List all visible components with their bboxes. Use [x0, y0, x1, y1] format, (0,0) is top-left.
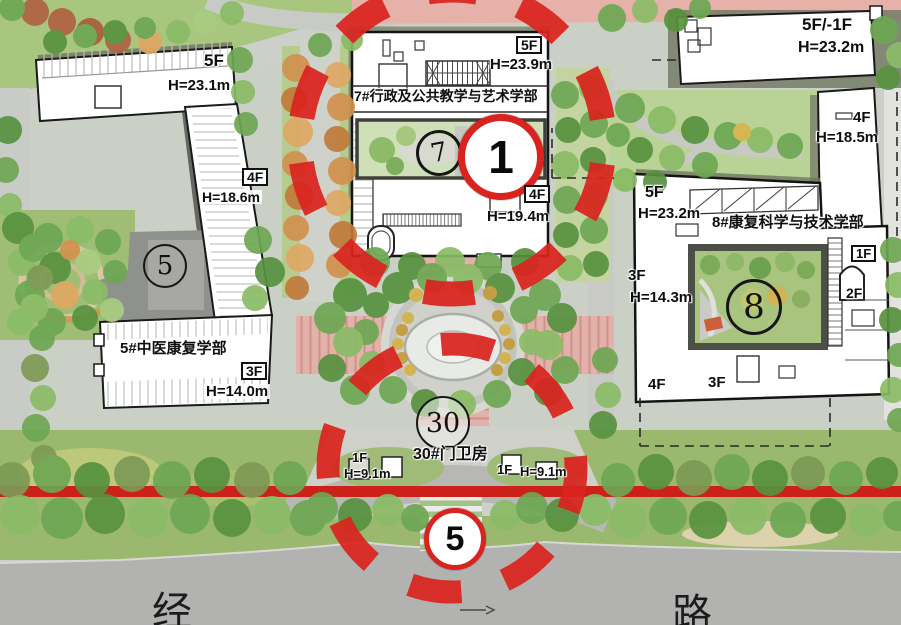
b5-name: 5#中医康复学部 — [120, 341, 227, 356]
b5-north-floors: 5F — [204, 52, 224, 69]
b5-main-height: H=14.0m — [204, 384, 270, 399]
b8-west-height: H=14.3m — [630, 290, 692, 305]
b8-north-floors: 5F — [645, 185, 664, 201]
road-name-east-char: 路 — [672, 594, 712, 625]
building-8-number-badge: 8 — [726, 279, 782, 335]
gatehouse-east-height: H=9.1m — [520, 465, 567, 478]
b7-north-floors: 5F — [516, 36, 542, 54]
b7-north-height: H=23.9m — [490, 57, 552, 72]
b8-west-floors: 3F — [628, 268, 646, 283]
b5-north-height: H=23.1m — [168, 78, 230, 93]
gatehouse-name: 30#门卫房 — [413, 447, 488, 463]
b8-name: 8#康复科学与技术学部 — [712, 215, 864, 230]
gatehouse-west-height: H=9.1m — [344, 467, 391, 480]
gatehouse-west-floors: 1F — [352, 451, 367, 464]
bne-floors: 5F/-1F — [802, 16, 852, 33]
gatehouse-number-badge: 30 — [416, 396, 470, 450]
b8-northeast-floors: 1F — [851, 245, 876, 262]
b5-east-height: H=18.6m — [200, 190, 262, 204]
b7-south-floors: 4F — [524, 185, 550, 203]
b8-east-floors: 2F — [846, 286, 862, 300]
gate-marker[interactable]: 5 — [424, 508, 486, 570]
b8-north-height: H=23.2m — [638, 206, 700, 221]
gatehouse-east-floors: 1F — [497, 463, 512, 476]
bne-height: H=23.2m — [798, 40, 864, 56]
b8-south-floors: 3F — [708, 375, 726, 390]
building-5-number-badge: 5 — [143, 244, 187, 288]
b8-southwest-floors: 4F — [648, 377, 666, 392]
road-name-west-char: 经 — [152, 592, 192, 625]
campus-site-plan: 5 7 8 30 1 5 5F H=23.1m 4F H=18.6m 5#中医康… — [0, 0, 901, 625]
be-floors: 4F — [853, 110, 871, 125]
b5-east-floors: 4F — [242, 168, 268, 186]
be-height: H=18.5m — [816, 130, 878, 145]
b5-main-floors: 3F — [241, 362, 267, 380]
b7-south-height: H=19.4m — [487, 209, 549, 224]
b7-name: 7#行政及公共教学与艺术学部 — [354, 89, 538, 103]
